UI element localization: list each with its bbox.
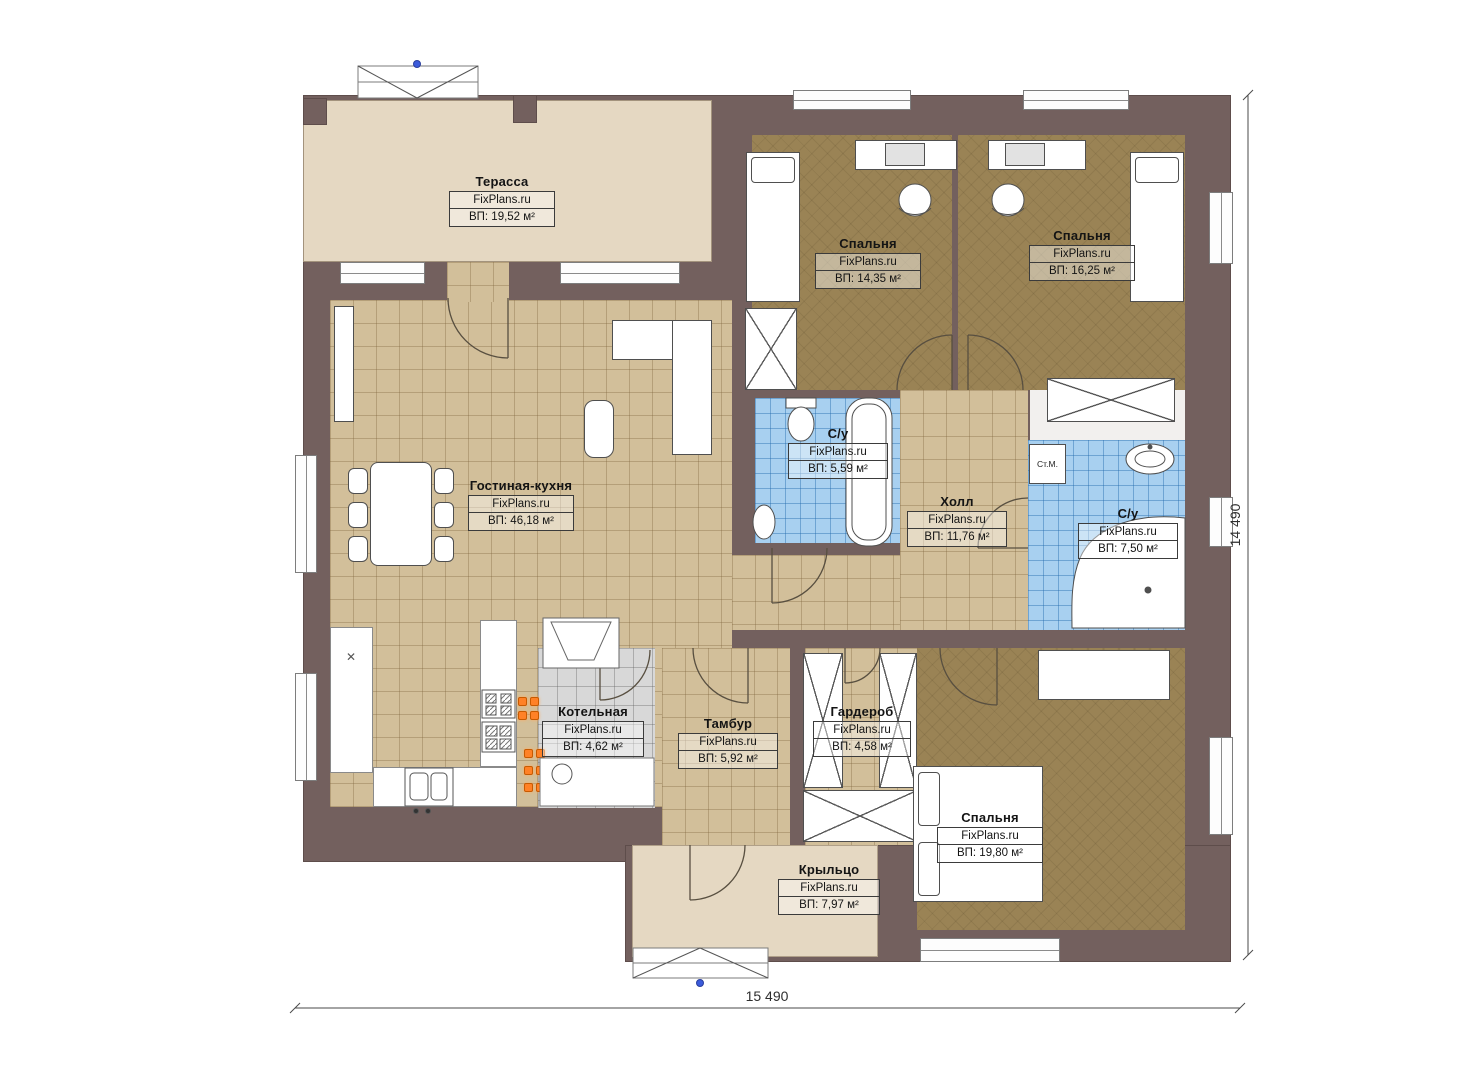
room-name: Терасса [442, 174, 562, 189]
room-label-wardrobe: Гардероб FixPlans.ru ВП: 4,58 м² [806, 704, 918, 757]
room-area: ВП: 7,97 м² [779, 897, 879, 913]
room-area: ВП: 16,25 м² [1030, 263, 1134, 279]
sofa [1038, 650, 1170, 700]
chair [434, 536, 454, 562]
wardrobe-closet [1047, 378, 1175, 422]
room-brand: FixPlans.ru [816, 254, 920, 271]
room-brand: FixPlans.ru [543, 722, 643, 739]
bed-pillow [751, 157, 795, 183]
room-name: Холл [905, 494, 1009, 509]
room-brand: FixPlans.ru [908, 512, 1006, 529]
terrace-pillar [303, 98, 327, 125]
room-area: ВП: 19,80 м² [938, 845, 1042, 861]
room-name: Спальня [930, 810, 1050, 825]
kitchen-counter [373, 767, 517, 807]
window [1209, 737, 1233, 835]
door-opening [447, 262, 509, 302]
tv-stand [334, 306, 354, 422]
room-label-vestibule: Тамбур FixPlans.ru ВП: 5,92 м² [672, 716, 784, 769]
room-area: ВП: 46,18 м² [469, 513, 573, 529]
wardrobe-closet [803, 790, 917, 842]
room-name: С/у [1076, 506, 1180, 521]
radiator-dot [524, 766, 533, 775]
room-brand: FixPlans.ru [1079, 524, 1177, 541]
room-brand: FixPlans.ru [814, 722, 910, 739]
room-name: С/у [786, 426, 890, 441]
floor-mark-x: ✕ [346, 650, 356, 664]
room-brand: FixPlans.ru [789, 444, 887, 461]
room-label-bathroom-large: С/у FixPlans.ru ВП: 7,50 м² [1076, 506, 1180, 559]
dimension-width-label: 15 490 [746, 988, 789, 1004]
room-label-living-kitchen: Гостиная-кухня FixPlans.ru ВП: 46,18 м² [455, 478, 587, 531]
washing-machine-label: Ст.М. [1037, 459, 1058, 469]
room-name: Тамбур [672, 716, 784, 731]
room-area: ВП: 5,59 м² [789, 461, 887, 477]
room-label-bedroom-bottom: Спальня FixPlans.ru ВП: 19,80 м² [930, 810, 1050, 863]
room-brand: FixPlans.ru [938, 828, 1042, 845]
radiator-dot [518, 711, 527, 720]
room-label-bedroom-top-left: Спальня FixPlans.ru ВП: 14,35 м² [808, 236, 928, 289]
room-name: Спальня [1022, 228, 1142, 243]
window [1023, 90, 1129, 110]
chair [348, 502, 368, 528]
window [295, 673, 317, 781]
window [793, 90, 911, 110]
room-name: Крыльцо [769, 862, 889, 877]
stairs-terrace [358, 61, 478, 99]
chair [348, 468, 368, 494]
room-label-terrace: Терасса FixPlans.ru ВП: 19,52 м² [442, 174, 562, 227]
kitchen-counter [480, 620, 517, 767]
window [920, 938, 1060, 962]
chair [348, 536, 368, 562]
room-label-bedroom-top-right: Спальня FixPlans.ru ВП: 16,25 м² [1022, 228, 1142, 281]
window [560, 262, 680, 284]
radiator-dot [536, 766, 545, 775]
window [340, 262, 425, 284]
dining-table [370, 462, 432, 566]
radiator-dot [524, 749, 533, 758]
room-area: ВП: 5,92 м² [679, 751, 777, 767]
washing-machine: Ст.М. [1029, 444, 1066, 484]
room-area: ВП: 4,58 м² [814, 739, 910, 755]
radiator-dot [518, 697, 527, 706]
room-name: Котельная [533, 704, 653, 719]
sofa [672, 320, 712, 455]
window [1209, 192, 1233, 264]
kitchen-counter [330, 627, 373, 773]
room-brand: FixPlans.ru [1030, 246, 1134, 263]
floor-plan: Ст.М. ✕ [0, 0, 1474, 1080]
dimension-height [1243, 90, 1253, 960]
window [1209, 497, 1233, 547]
desk-printer [1005, 143, 1045, 166]
room-label-porch: Крыльцо FixPlans.ru ВП: 7,97 м² [769, 862, 889, 915]
room-name: Гостиная-кухня [455, 478, 587, 493]
room-area: ВП: 4,62 м² [543, 739, 643, 755]
room-brand: FixPlans.ru [679, 734, 777, 751]
room-label-bathroom-small: С/у FixPlans.ru ВП: 5,59 м² [786, 426, 890, 479]
chair [434, 468, 454, 494]
room-area: ВП: 14,35 м² [816, 271, 920, 287]
chair [434, 502, 454, 528]
desk-printer [885, 143, 925, 166]
room-brand: FixPlans.ru [450, 192, 554, 209]
room-brand: FixPlans.ru [469, 496, 573, 513]
room-label-boiler-room: Котельная FixPlans.ru ВП: 4,62 м² [533, 704, 653, 757]
window [295, 455, 317, 573]
radiator-dot [536, 783, 545, 792]
room-name: Гардероб [806, 704, 918, 719]
bed-pillow [1135, 157, 1179, 183]
room-area: ВП: 7,50 м² [1079, 541, 1177, 557]
radiator-dot [524, 783, 533, 792]
room-area: ВП: 11,76 м² [908, 529, 1006, 545]
room-area: ВП: 19,52 м² [450, 209, 554, 225]
room-name: Спальня [808, 236, 928, 251]
dimension-width [290, 1003, 1245, 1013]
room-brand: FixPlans.ru [779, 880, 879, 897]
coffee-table [584, 400, 614, 458]
terrace-pillar [513, 95, 537, 123]
room-label-hall: Холл FixPlans.ru ВП: 11,76 м² [905, 494, 1009, 547]
wardrobe-closet [745, 308, 797, 390]
